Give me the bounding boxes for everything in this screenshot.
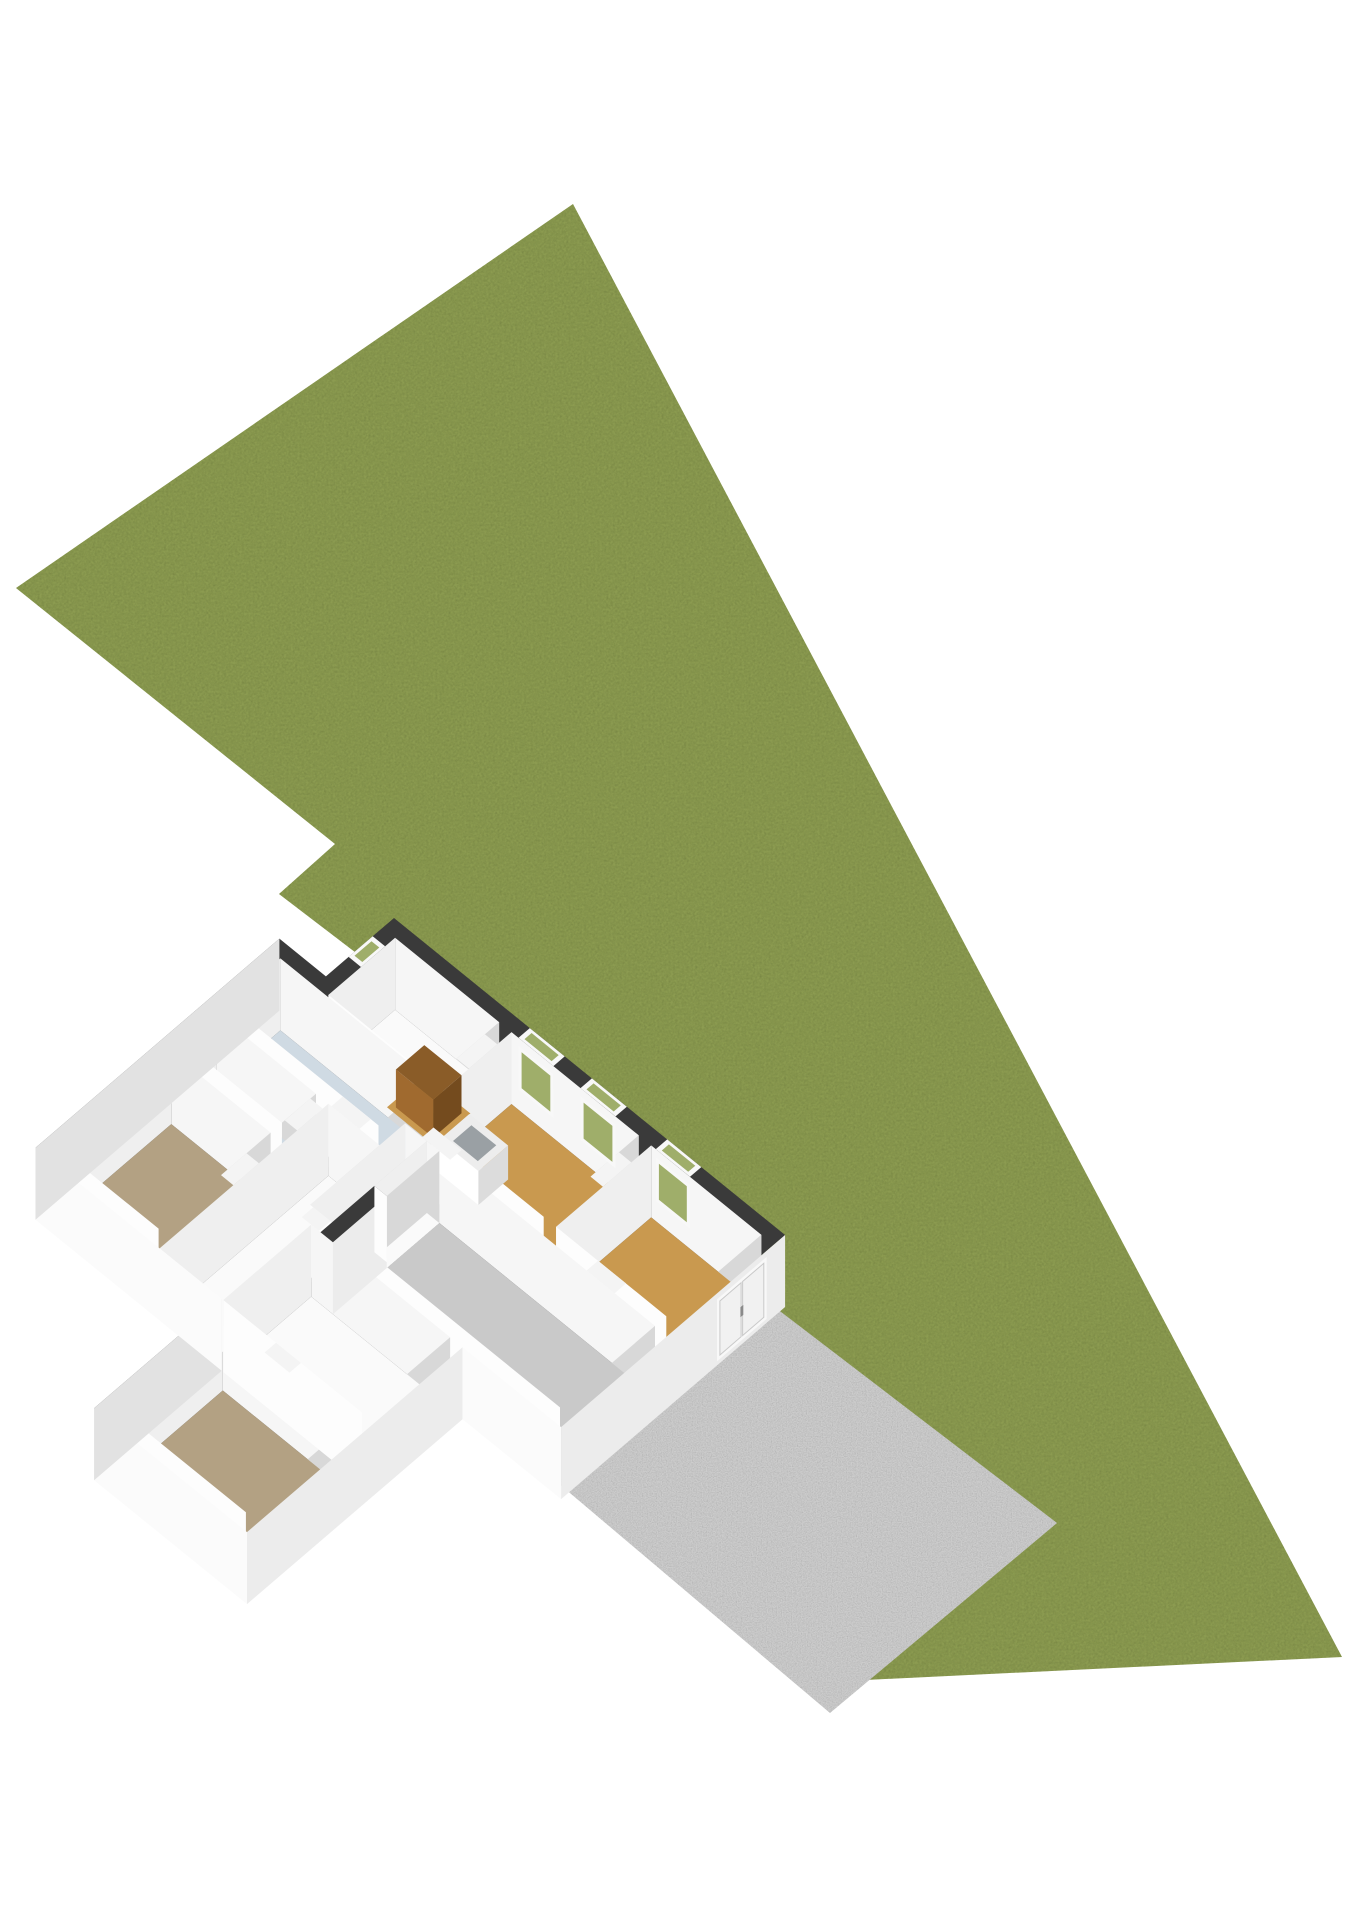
living-stub-wall-endcap xyxy=(374,1186,386,1262)
floorplan-page xyxy=(0,0,1358,1920)
floorplan-3d-scene xyxy=(0,0,1358,1920)
